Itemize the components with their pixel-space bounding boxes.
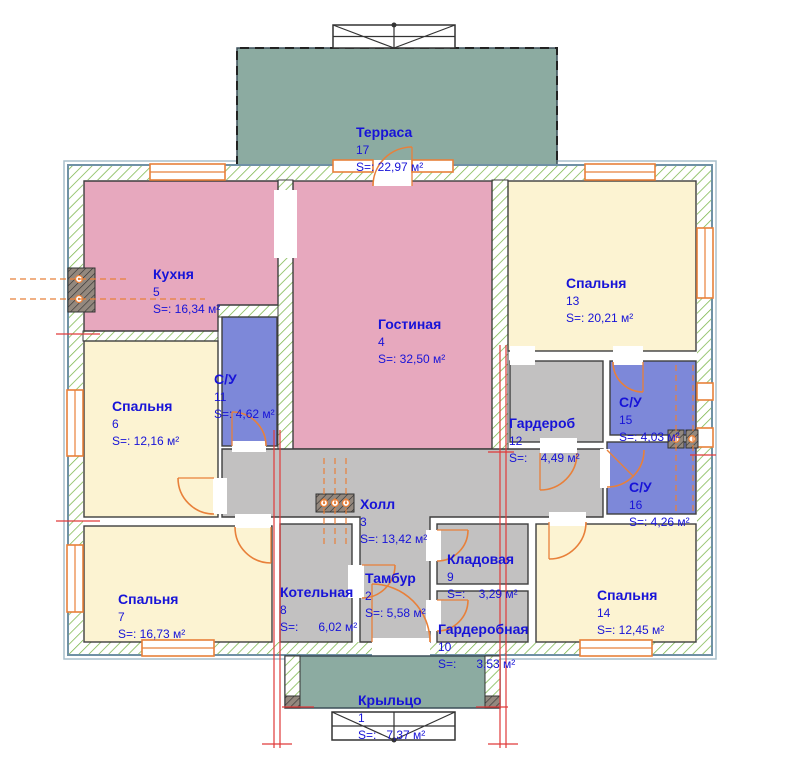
room-label-wardrobe: Гардероб12S=: 4,49 м² bbox=[509, 377, 580, 503]
terrace-stairs bbox=[333, 23, 455, 49]
room-label-bedroom14: Спальня14S=: 12,45 м² bbox=[597, 549, 664, 675]
room-label-kitchen: Кухня5S=: 16,34 м² bbox=[153, 228, 220, 354]
room-label-boiler: Котельная8S=: 6,02 м² bbox=[280, 546, 357, 672]
room-label-living: Гостиная4S=: 32,50 м² bbox=[378, 278, 445, 404]
room-label-bedroom7: Спальня7S=: 16,73 м² bbox=[118, 553, 185, 679]
room-label-bedroom6: Спальня6S=: 12,16 м² bbox=[112, 360, 179, 486]
room-label-porch: Крыльцо1S=: 7,37 м² bbox=[358, 654, 425, 763]
room-label-bathroom11: С/У11S=: 4,62 м² bbox=[214, 333, 275, 459]
chimney-kitchen bbox=[68, 268, 95, 312]
room-label-dressing: Гардеробная10S=: 3,53 м² bbox=[438, 583, 529, 709]
room-label-terrace: Терраса17S=: 22,97 м² bbox=[356, 86, 423, 212]
room-label-bedroom13: Спальня13S=: 20,21 м² bbox=[566, 237, 633, 363]
room-label-tambour: Тамбур2S=: 5,58 м² bbox=[365, 532, 426, 658]
window-bathroom15 bbox=[697, 383, 713, 400]
floor-plan-page: Терраса17S=: 22,97 м² Кухня5S=: 16,34 м²… bbox=[0, 0, 800, 763]
window-bathroom16 bbox=[697, 428, 713, 447]
